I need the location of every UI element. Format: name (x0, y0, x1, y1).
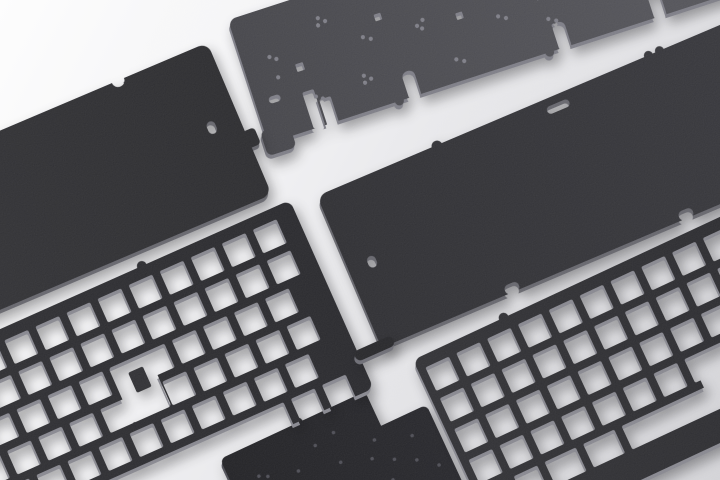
keyboard-foam-flatlay-photo (0, 0, 720, 480)
photo-flatlay-stage (0, 0, 720, 480)
